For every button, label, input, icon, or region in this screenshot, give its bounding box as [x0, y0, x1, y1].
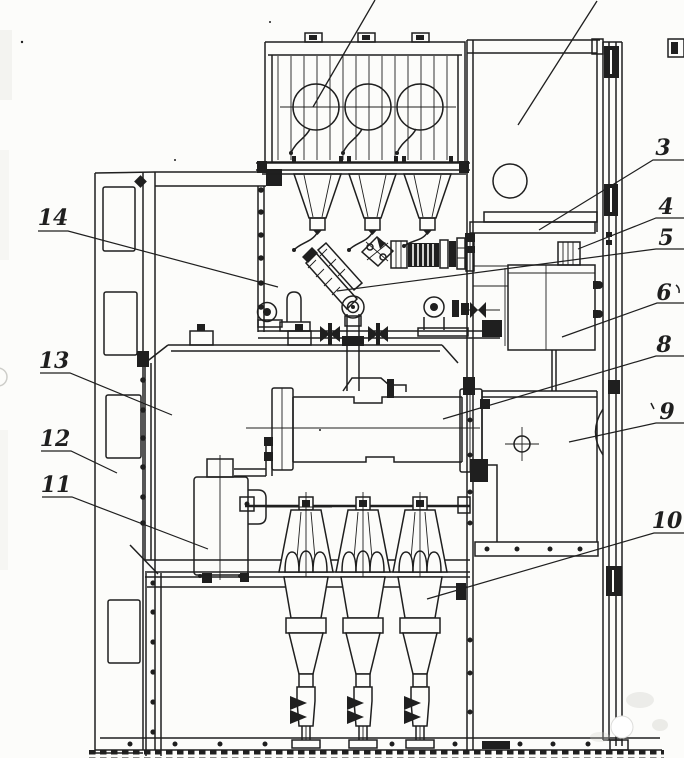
- callout-number-4: 4: [658, 194, 673, 220]
- callout-number-3: 3: [655, 135, 670, 161]
- callout-number-12: 12: [40, 426, 71, 452]
- watermark-spot: [611, 716, 633, 738]
- drawing-canvas: 3456891011121314: [0, 0, 684, 758]
- callout-number-10: 10: [652, 508, 683, 534]
- callout-number-5: 5: [658, 225, 673, 251]
- callout-number-6: 6: [656, 280, 671, 306]
- engineering-drawing: 3456891011121314: [0, 0, 684, 758]
- paper-background: [0, 0, 684, 758]
- callout-number-9: 9: [659, 399, 674, 425]
- ground-hatch: [86, 750, 664, 758]
- callout-number-13: 13: [39, 348, 70, 374]
- callout-number-8: 8: [655, 332, 671, 358]
- callout-number-14: 14: [38, 205, 69, 231]
- callout-number-11: 11: [41, 472, 72, 498]
